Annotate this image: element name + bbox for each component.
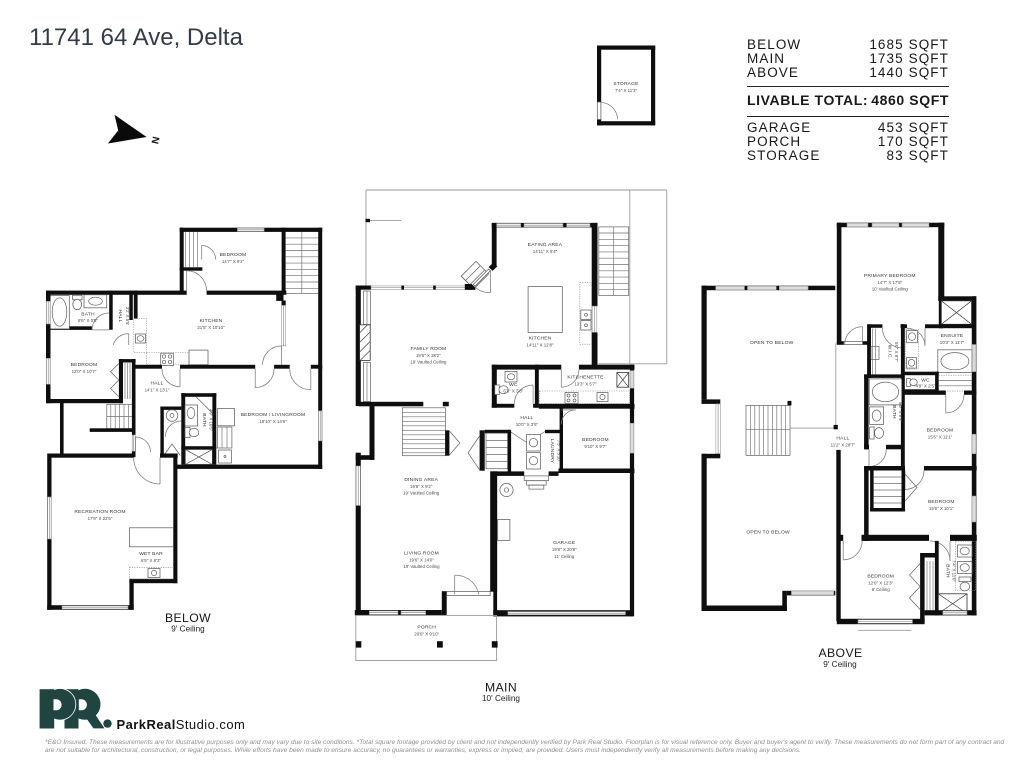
svg-text:ParkRealStudio.com: ParkRealStudio.com bbox=[117, 717, 246, 732]
